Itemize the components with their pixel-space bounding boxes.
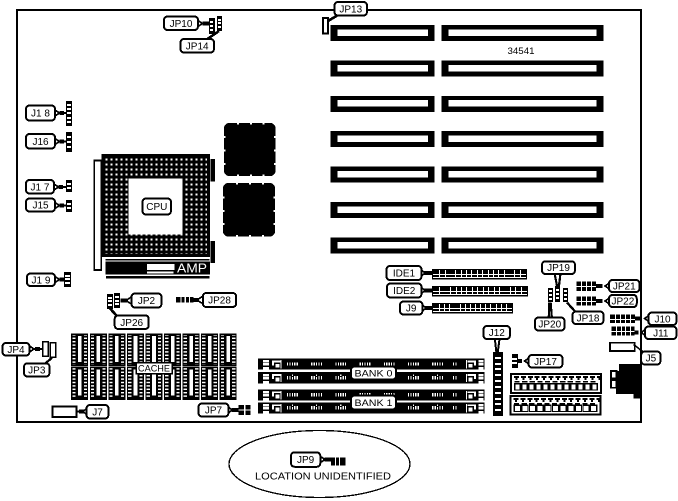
svg-text:JP28: JP28 — [208, 296, 231, 307]
svg-text:JP21: JP21 — [613, 282, 636, 293]
svg-text:JP13: JP13 — [339, 4, 362, 15]
svg-text:JP2: JP2 — [138, 296, 156, 307]
svg-text:JP22: JP22 — [612, 297, 635, 308]
svg-text:IDE1: IDE1 — [393, 269, 416, 280]
svg-text:34541: 34541 — [508, 46, 535, 56]
svg-text:JP9: JP9 — [297, 455, 315, 466]
svg-text:J10: J10 — [654, 314, 671, 325]
svg-text:JP19: JP19 — [547, 263, 570, 274]
svg-text:J15: J15 — [32, 201, 49, 212]
svg-text:JP17: JP17 — [534, 357, 557, 368]
svg-text:J1 9: J1 9 — [32, 275, 51, 286]
svg-text:BANK 0: BANK 0 — [355, 369, 393, 380]
svg-text:JP18: JP18 — [577, 313, 600, 324]
svg-text:J9: J9 — [406, 304, 417, 315]
svg-text:JP14: JP14 — [186, 41, 209, 52]
svg-text:JP7: JP7 — [205, 406, 223, 417]
svg-text:CACHE: CACHE — [138, 364, 170, 375]
svg-text:JP3: JP3 — [28, 366, 46, 377]
svg-text:J7: J7 — [92, 407, 103, 418]
svg-text:CPU: CPU — [146, 202, 167, 213]
svg-text:JP20: JP20 — [538, 320, 561, 331]
svg-text:J11: J11 — [653, 328, 669, 339]
svg-text:JP26: JP26 — [120, 318, 143, 329]
svg-text:AMP: AMP — [177, 262, 207, 276]
svg-text:J1 7: J1 7 — [31, 182, 50, 193]
svg-text:J5: J5 — [646, 354, 657, 365]
svg-text:JP10: JP10 — [170, 19, 193, 30]
svg-text:JP4: JP4 — [7, 345, 25, 356]
svg-text:J16: J16 — [32, 137, 49, 148]
svg-text:LOCATION UNIDENTIFIED: LOCATION UNIDENTIFIED — [255, 472, 391, 483]
svg-text:J1 8: J1 8 — [31, 109, 50, 120]
svg-text:IDE2: IDE2 — [393, 286, 416, 297]
svg-text:BANK 1: BANK 1 — [355, 398, 393, 409]
svg-text:J12: J12 — [489, 328, 506, 339]
